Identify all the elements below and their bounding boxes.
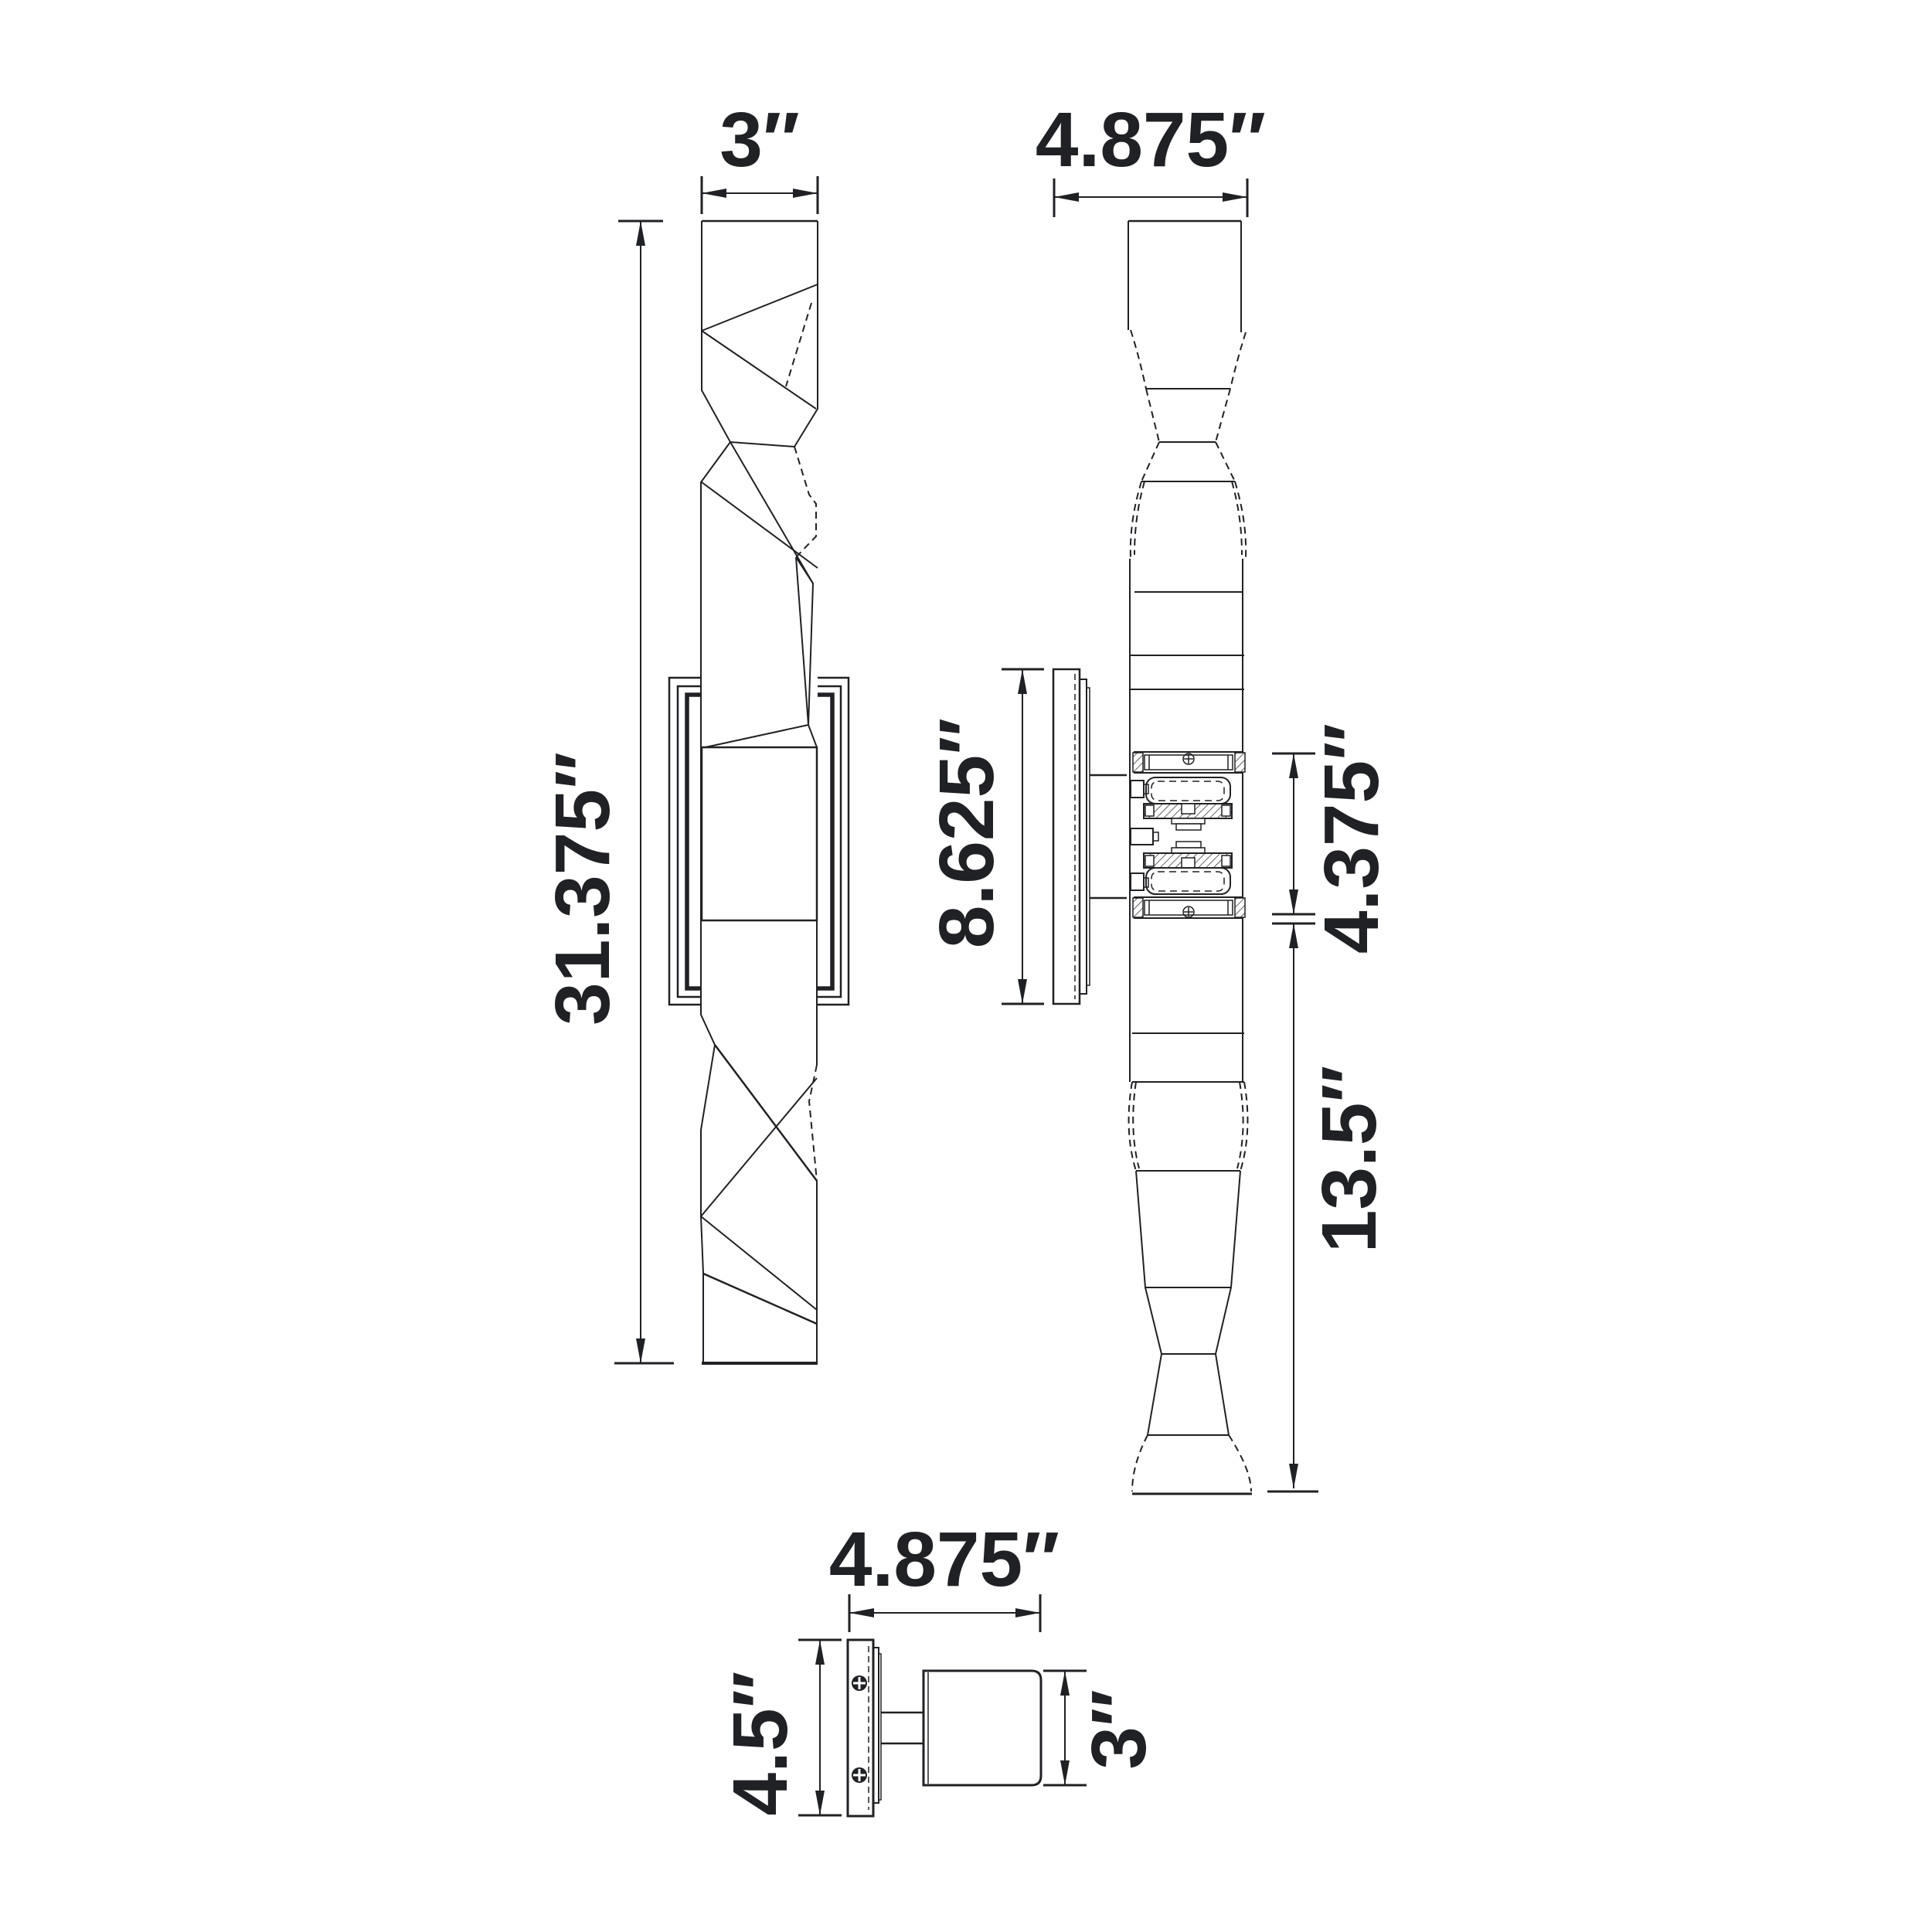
- front-face-panel: [702, 747, 817, 920]
- dim-front-width-label: 3″: [719, 97, 800, 183]
- dim-lower-section-label: 13.5″: [1306, 1066, 1393, 1253]
- screw-icon: [1183, 906, 1194, 917]
- dim-body-depth-label: 3″: [1076, 1689, 1162, 1770]
- dim-overall-height-label: 31.375″: [539, 752, 626, 1026]
- top-body: [923, 1671, 1041, 1785]
- screw-icon: [1183, 753, 1194, 764]
- dim-backplate-width-label: 4.5″: [717, 1672, 804, 1816]
- technical-drawing: 3″ 31.375″: [0, 0, 1932, 1932]
- dim-backplate-height-label: 8.625″: [923, 718, 1010, 948]
- dim-side-projection-label: 4.875″: [1036, 97, 1266, 183]
- screw-icon: [852, 1767, 867, 1783]
- canvas: [0, 0, 1932, 1932]
- dim-center-section-label: 4.375″: [1308, 723, 1395, 954]
- dim-top-projection-label: 4.875″: [829, 1516, 1060, 1603]
- screw-icon: [852, 1675, 867, 1691]
